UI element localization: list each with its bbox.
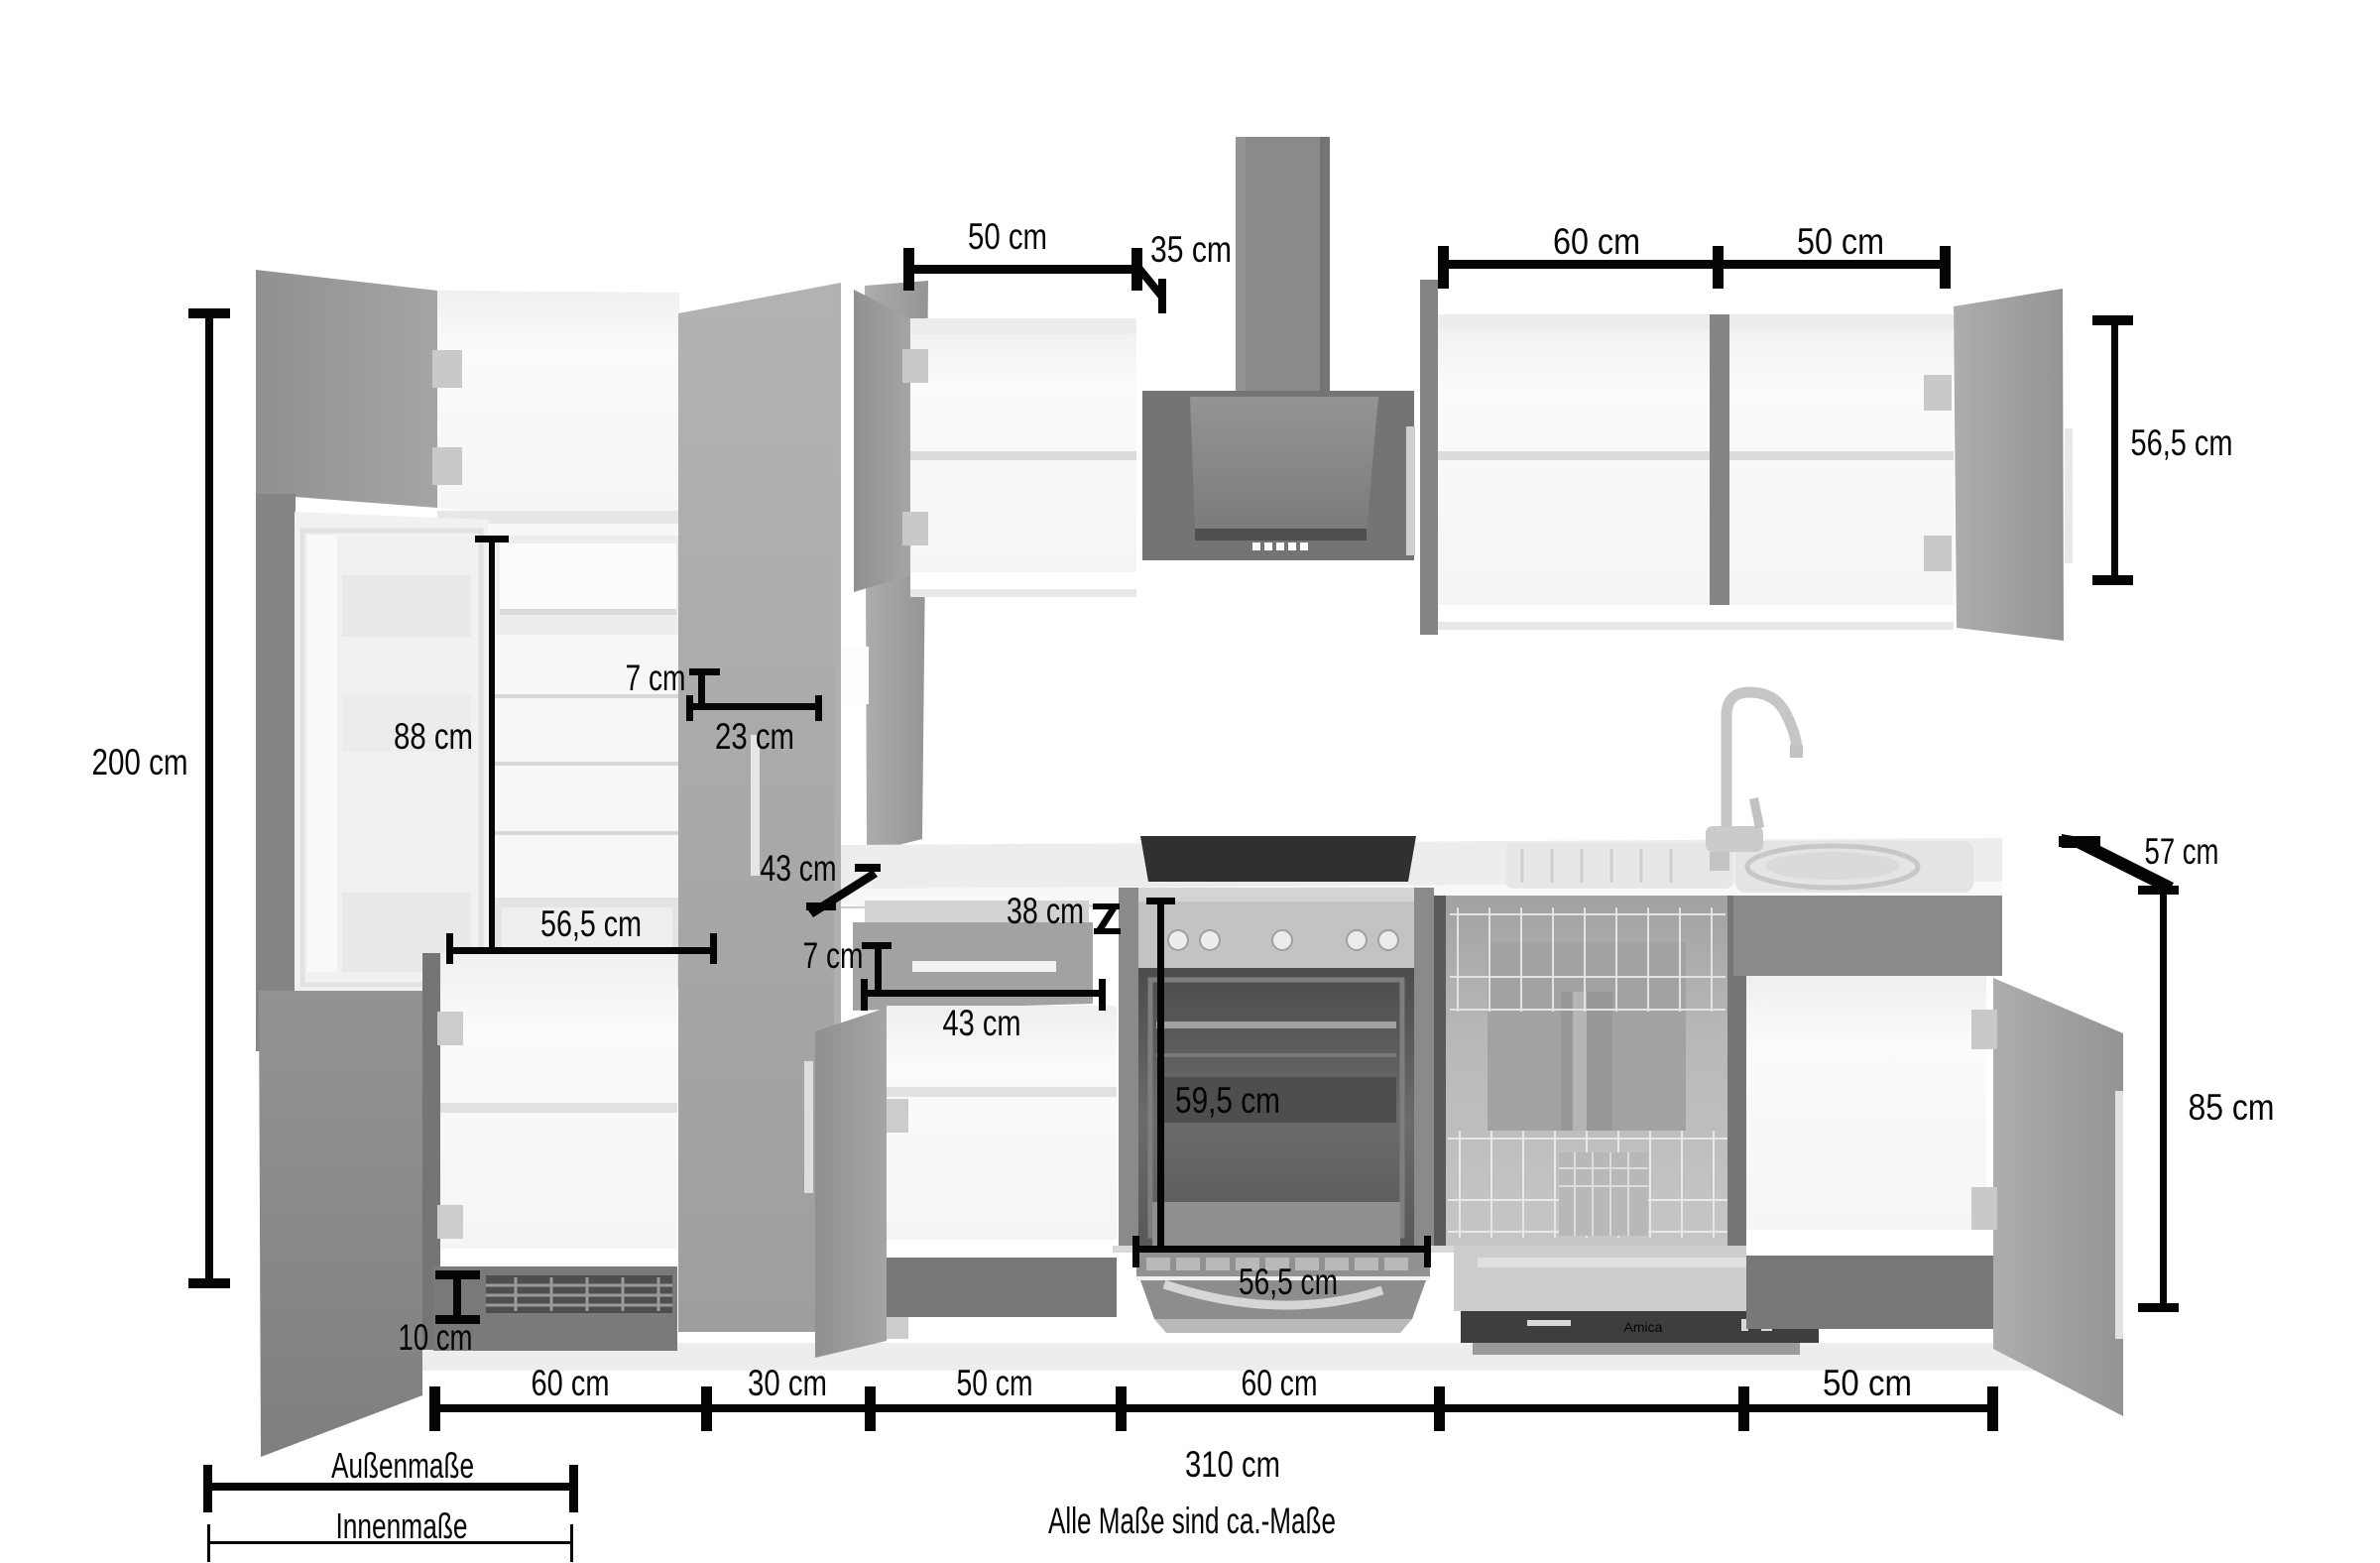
svg-text:43 cm: 43 cm	[761, 848, 837, 889]
svg-text:57 cm: 57 cm	[2145, 831, 2219, 872]
svg-text:50 cm: 50 cm	[968, 216, 1047, 257]
svg-text:50 cm: 50 cm	[1823, 1363, 1912, 1403]
svg-text:10 cm: 10 cm	[399, 1317, 473, 1358]
svg-text:85 cm: 85 cm	[2189, 1087, 2275, 1128]
svg-text:35 cm: 35 cm	[1150, 229, 1232, 270]
svg-text:Außenmaße: Außenmaße	[331, 1445, 474, 1486]
svg-text:Alle Maße sind ca.-Maße: Alle Maße sind ca.-Maße	[1048, 1501, 1336, 1541]
svg-text:56,5 cm: 56,5 cm	[1239, 1262, 1338, 1302]
svg-text:56,5 cm: 56,5 cm	[540, 903, 642, 944]
svg-text:50 cm: 50 cm	[1797, 221, 1884, 262]
svg-text:200 cm: 200 cm	[92, 742, 188, 782]
svg-text:56,5 cm: 56,5 cm	[2131, 422, 2233, 463]
svg-text:Innenmaße: Innenmaße	[336, 1505, 468, 1546]
svg-text:38 cm: 38 cm	[1007, 891, 1084, 931]
svg-text:7 cm: 7 cm	[803, 935, 864, 976]
svg-text:50 cm: 50 cm	[957, 1363, 1033, 1403]
svg-text:23 cm: 23 cm	[715, 716, 794, 757]
svg-text:7 cm: 7 cm	[626, 658, 686, 698]
svg-text:310 cm: 310 cm	[1185, 1444, 1280, 1485]
svg-text:30 cm: 30 cm	[748, 1363, 827, 1403]
svg-text:88 cm: 88 cm	[394, 716, 473, 757]
svg-text:60 cm: 60 cm	[1242, 1363, 1318, 1403]
svg-text:60 cm: 60 cm	[1553, 221, 1640, 262]
svg-text:59,5 cm: 59,5 cm	[1175, 1080, 1280, 1121]
svg-text:43 cm: 43 cm	[943, 1003, 1021, 1043]
svg-text:Amica: Amica	[1624, 1319, 1663, 1335]
svg-text:60 cm: 60 cm	[532, 1363, 610, 1403]
